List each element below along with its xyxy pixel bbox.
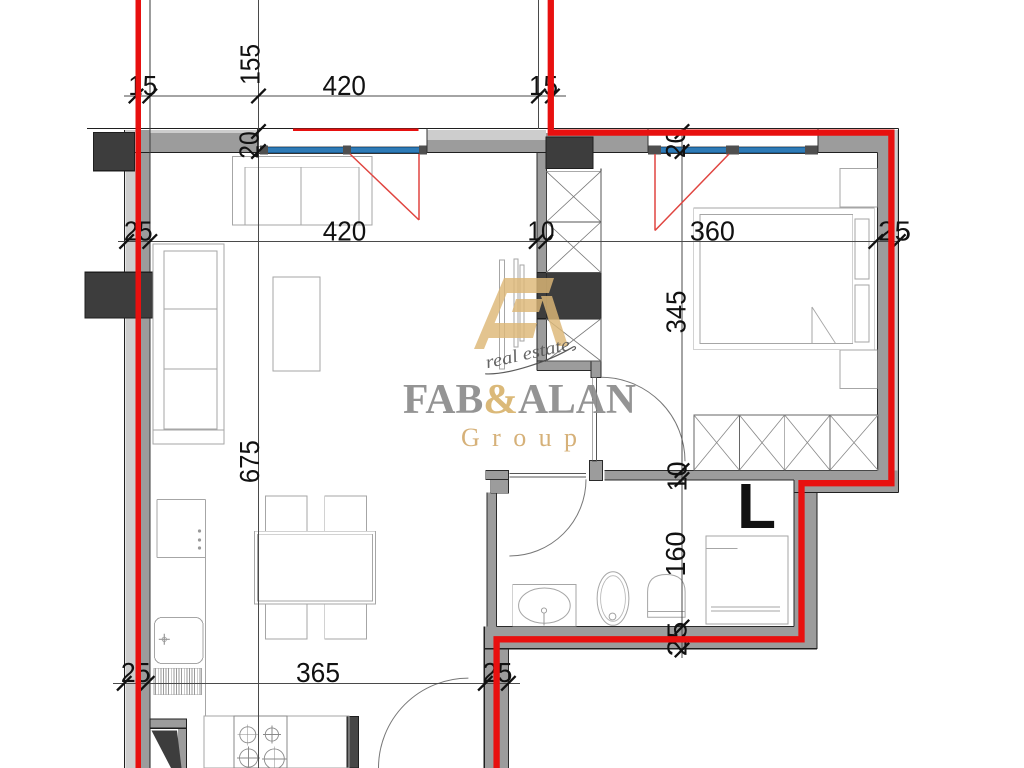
svg-text:20: 20 <box>234 131 265 159</box>
svg-text:155: 155 <box>235 44 266 85</box>
svg-text:10: 10 <box>528 215 555 246</box>
svg-text:15: 15 <box>128 70 157 101</box>
svg-text:L: L <box>737 470 776 542</box>
svg-text:160: 160 <box>660 532 691 577</box>
svg-text:345: 345 <box>661 291 692 334</box>
svg-text:420: 420 <box>322 70 366 101</box>
svg-text:FAB&ALAN: FAB&ALAN <box>403 377 636 423</box>
svg-text:Group: Group <box>461 423 589 452</box>
svg-text:360: 360 <box>690 215 735 246</box>
svg-text:675: 675 <box>234 440 265 483</box>
svg-text:365: 365 <box>296 657 340 688</box>
svg-text:10: 10 <box>662 462 693 492</box>
svg-text:420: 420 <box>323 215 367 246</box>
